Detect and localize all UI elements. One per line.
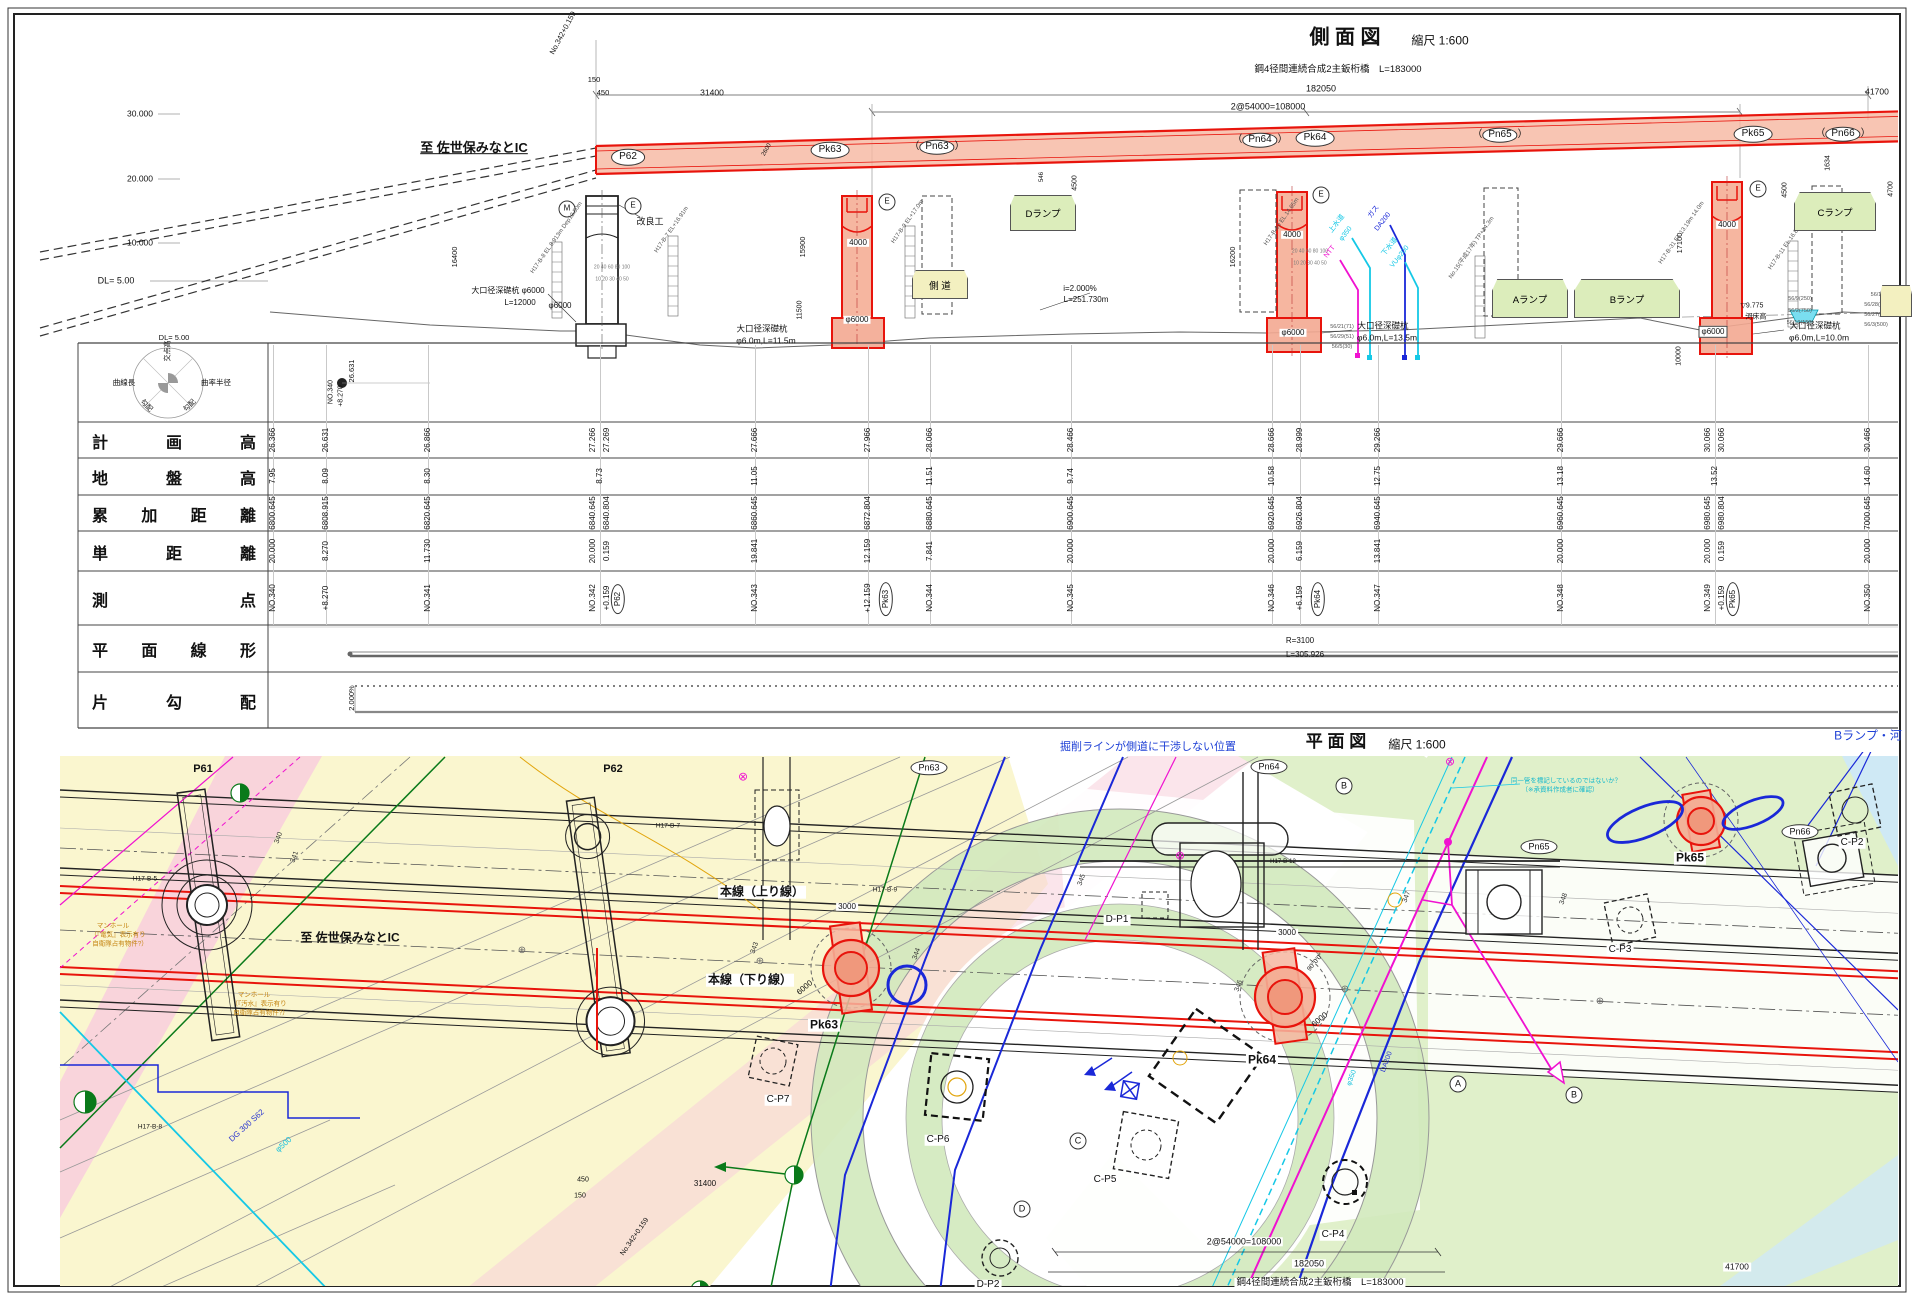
ground-height-value: 8.30: [424, 468, 432, 484]
cumulative-distance-value: 7000.645: [1864, 496, 1872, 529]
unit-distance-value: 0.159: [603, 541, 611, 561]
ramp-B-mark: B: [1566, 1087, 1583, 1104]
elevation-label: 26.631: [348, 360, 356, 383]
pier-bubble-Pk64: Pk64: [1296, 130, 1335, 147]
plan-label: 343: [750, 941, 761, 954]
plan-CP2: C-P2: [1839, 838, 1866, 849]
plan-Pn64: Pn64: [1250, 759, 1287, 774]
unit-distance-value: 8.270: [322, 541, 330, 561]
station-value: NO.350: [1864, 584, 1872, 612]
plan-label: H17-B-8: [138, 1125, 162, 1132]
plan-note-excavation: 掘削ラインが側道に干渉しない位置: [1060, 742, 1236, 754]
plan-label: DG 300 S62: [228, 1108, 266, 1144]
station-value: NO.341: [424, 584, 432, 612]
plan-bridge-type: 鋼4径間連続合成2主鈑桁橋 L=183000: [1234, 1278, 1405, 1288]
alignment-radius: R=3100: [1286, 637, 1314, 645]
plan-destination: 至 佐世保みなとIC: [300, 932, 399, 945]
plan-dim-spans: 2@54000=108000: [1205, 1237, 1283, 1246]
plan-label: 348: [1559, 892, 1570, 905]
planned-height-value: 27.269: [603, 428, 611, 452]
planned-height-value: 28.999: [1296, 428, 1304, 452]
plan-Pn63: Pn63: [910, 760, 947, 775]
destination-label: 至 佐世保みなとIC: [420, 141, 528, 155]
plan-label: H17-B-9: [873, 888, 897, 895]
elevation-label: 56/10(150): [1787, 321, 1814, 327]
cumulative-distance-value: 6840.645: [589, 496, 597, 529]
plan-note-pipe: 同一管を標記しているのではないか？: [1511, 779, 1621, 786]
unit-distance-value: 20.000: [589, 539, 597, 563]
ntt-label: NTT: [1323, 244, 1337, 259]
side-road: 側 道: [912, 270, 968, 299]
bearing-E-icon: E: [879, 194, 896, 211]
planned-height-value: 28.066: [926, 428, 934, 452]
cumulative-distance-value: 6920.645: [1268, 496, 1276, 529]
elevation-label: 31400: [700, 89, 724, 98]
table-row-header: 計画高: [92, 429, 256, 453]
side-road-right: [1880, 285, 1912, 317]
elevation-label: 4500: [1071, 175, 1078, 191]
plan-CP6: C-P6: [925, 1135, 952, 1146]
station-pier-bubble: Pk65: [1726, 582, 1740, 616]
station-cross-icon: ⊕: [1596, 997, 1604, 1008]
pier-bubble-Pn63: （Pn63）: [909, 140, 964, 155]
elevation-label: 4000: [1281, 231, 1303, 239]
table-row-header: 単距離: [92, 540, 256, 564]
elevation-label: 4700: [1887, 181, 1894, 197]
elevation-label: +8.270: [337, 385, 344, 407]
elevation-label: 56/1: [1871, 293, 1882, 299]
unit-distance-value: 20.000: [1704, 539, 1712, 563]
plan-Pn66: Pn66: [1781, 824, 1818, 839]
cumulative-distance-value: 6872.804: [864, 496, 872, 529]
ground-height-value: 12.75: [1374, 466, 1382, 486]
plan-label: 150: [574, 1192, 586, 1199]
bearing-E-icon: E: [1750, 181, 1767, 198]
plan-label: φ500: [274, 1136, 293, 1155]
unit-distance-value: 20.000: [269, 539, 277, 563]
ground-height-value: 8.09: [322, 468, 330, 484]
plan-CP5: C-P5: [1092, 1175, 1119, 1186]
ground-height-value: 7.95: [269, 468, 277, 484]
cumulative-distance-value: 6980.645: [1704, 496, 1712, 529]
elevation-label: 交点高: [164, 341, 171, 362]
elevation-label: No.342+0.159: [548, 10, 577, 55]
manhole-note: マンホール: [238, 993, 271, 1000]
plan-note-bramp: Bランプ・河: [1834, 730, 1902, 743]
station-value: +12.159: [864, 583, 872, 612]
station-value: NO.346: [1268, 584, 1276, 612]
ground-improvement-label: 改良工: [636, 217, 663, 226]
cumulative-distance-value: 6820.645: [424, 496, 432, 529]
pier-bubble-P62: P62: [611, 149, 645, 166]
plan-title: 平 面 図: [1306, 733, 1366, 751]
station-value: NO.348: [1557, 584, 1565, 612]
bearing-E-icon: E: [625, 198, 642, 215]
ramp-A: Aランプ: [1492, 279, 1568, 318]
dim-spans: 2@54000=108000: [1231, 102, 1305, 111]
elevation-label: 546: [1039, 172, 1045, 182]
table-row-header: 累加距離: [92, 502, 256, 526]
pier-bubble-Pn66: （Pn66）: [1815, 127, 1870, 142]
planned-height-value: 27.266: [589, 428, 597, 452]
label-layer: 側 面 図縮尺 1:600鋼4径間連続合成2主鈑桁橋 L=18300018205…: [0, 0, 1914, 1300]
elevation-label: 勾配: [138, 398, 153, 413]
ground-height-value: 11.05: [751, 466, 759, 485]
plan-label: φ350: [1346, 1069, 1358, 1087]
drawing-sheet: 側 面 図縮尺 1:600鋼4径間連続合成2主鈑桁橋 L=18300018205…: [0, 0, 1914, 1300]
bridge-type: 鋼4径間連続合成2主鈑桁橋 L=183000: [1254, 65, 1421, 75]
planned-height-value: 26.866: [424, 428, 432, 452]
elevation-title: 側 面 図: [1309, 28, 1380, 49]
pile-note: 大口径深礎杭: [736, 325, 787, 334]
ramp-C: Cランプ: [1794, 192, 1876, 231]
table-row-header: 片勾配: [92, 689, 256, 713]
elevation-label: 56/9(250): [1788, 297, 1812, 303]
planned-height-value: 30.466: [1864, 428, 1872, 452]
plan-label: DA200: [1380, 1051, 1394, 1074]
cumulative-distance-value: 6926.804: [1296, 496, 1304, 529]
elevation-label: 20 40 60 80 100: [594, 265, 630, 270]
station-value: +8.270: [322, 586, 330, 611]
elevation-label: H17-B-8 EL.8.913m Dep12.50m: [530, 201, 584, 275]
planned-height-value: 27.966: [864, 428, 872, 452]
elevation-label: 56/29(51): [1330, 335, 1354, 341]
elevation-label: φ6000: [844, 316, 871, 324]
station-value: +6.159: [1296, 586, 1304, 611]
bearing-E-icon: E: [1313, 187, 1330, 204]
elevation-label: H17-B-31 EL.13.19m 14.0m: [1658, 201, 1706, 266]
plan-dim-182050: 182050: [1292, 1259, 1326, 1268]
elevation-label: NO.340: [327, 380, 334, 404]
dim-182050: 182050: [1306, 84, 1336, 93]
plan-label: 346: [1234, 979, 1245, 992]
planned-height-value: 28.466: [1067, 428, 1075, 452]
elevation-label: 河床高: [1746, 313, 1767, 320]
plan-label: 344: [912, 947, 923, 960]
utility-cross-icon: ⊗: [1175, 850, 1185, 863]
pier-bubble-Pk65: Pk65: [1734, 126, 1773, 143]
unit-distance-value: 19.841: [751, 539, 759, 563]
ground-height-value: 10.58: [1268, 466, 1276, 486]
unit-distance-value: 20.000: [1557, 539, 1565, 563]
elevation-label: 10 20 30 40 50: [1293, 261, 1326, 266]
elevation-label: L=251.730m: [1064, 296, 1109, 304]
plan-Pk63: Pk63: [808, 1019, 840, 1032]
elevation-label: 1634: [1824, 155, 1831, 171]
plan-label: No.342+0.159: [619, 1217, 650, 1257]
planned-height-value: 29.666: [1557, 428, 1565, 452]
station-pier-bubble: Pk64: [1311, 582, 1325, 616]
station-value: NO.347: [1374, 584, 1382, 612]
planned-height-value: 28.666: [1268, 428, 1276, 452]
plan-label: 3000: [836, 903, 858, 911]
unit-distance-value: 13.841: [1374, 539, 1382, 563]
plan-label: （『汚水』表示有り: [231, 1002, 286, 1009]
elevation-label: φ6.0m,L=10.0m: [1789, 334, 1849, 343]
station-value: NO.349: [1704, 584, 1712, 612]
elevation-label: 16200: [1229, 247, 1237, 268]
mainline-up: 本線（上り線）: [718, 886, 806, 899]
elevation-label: No.15(平成17年) TP+14.3m: [1448, 216, 1496, 280]
plan-label: 340: [274, 831, 285, 844]
pier-bubble-Pk63: Pk63: [811, 142, 850, 159]
manhole-note: マンホール: [97, 924, 130, 931]
station-value: NO.343: [751, 584, 759, 612]
elevation-label: 56/3(500): [1864, 323, 1888, 329]
ramp-D-mark: D: [1014, 1201, 1031, 1218]
elevation-label: 10000: [1675, 346, 1682, 365]
elevation-label: 曲率半径: [201, 379, 231, 387]
plan-Pn65: Pn65: [1520, 839, 1557, 854]
elev-10: 10.000: [127, 239, 153, 248]
plan-label: 90°0′0″: [1307, 953, 1325, 973]
elev-30: 30.000: [127, 110, 153, 119]
plan-label: （『電気』表示有り: [90, 933, 145, 940]
cumulative-distance-value: 6860.645: [751, 496, 759, 529]
plan-label: 自衛隊占有物件?）: [92, 942, 148, 949]
plan-label: 345: [1077, 873, 1088, 886]
station-pier-bubble: P62: [611, 584, 625, 614]
elevation-label: 勾配: [182, 398, 197, 413]
cumulative-distance-value: 6800.645: [269, 496, 277, 529]
utility-cross-icon: ⊗: [1445, 756, 1455, 769]
superelevation-value: 2.000%: [348, 685, 356, 710]
elevation-label: φ6000: [1280, 329, 1307, 337]
elevation-label: φ350: [1338, 225, 1354, 242]
table-row-header: 平面線形: [92, 637, 256, 661]
plan-P62: P62: [603, 764, 623, 776]
pile-note: 大口径深礎杭 φ6000: [471, 287, 544, 295]
cumulative-distance-value: 6840.804: [603, 496, 611, 529]
plan-Pk64: Pk64: [1246, 1054, 1278, 1067]
ramp-B-mark: B: [1336, 778, 1353, 795]
utility-cross-icon: ⊗: [738, 771, 748, 784]
plan-label: （※承資料作成者に確認）: [1522, 788, 1599, 795]
ground-height-value: 13.52: [1711, 466, 1719, 486]
elevation-label: φ6.0m,L=13.5m: [1357, 334, 1417, 343]
unit-distance-value: 6.159: [1296, 541, 1304, 561]
elevation-label: 56/2(750): [1788, 309, 1812, 315]
plan-CP7: C-P7: [765, 1095, 792, 1106]
elevation-label: i=2.000%: [1063, 285, 1097, 293]
plan-label: 450: [577, 1176, 589, 1183]
cumulative-distance-value: 6900.645: [1067, 496, 1075, 529]
unit-distance-value: 20.000: [1268, 539, 1276, 563]
ramp-B: Bランプ: [1574, 279, 1680, 318]
plan-label: 自衛隊占有物件?）: [233, 1011, 289, 1018]
datum-label: DL= 5.00: [98, 276, 135, 285]
pier-bubble-Pn64: （Pn64）: [1232, 133, 1287, 148]
table-row-header: 地盤高: [92, 465, 256, 489]
station-cross-icon: ⊕: [1341, 985, 1349, 996]
planned-height-value: 30.066: [1718, 428, 1726, 452]
ground-height-value: 13.18: [1557, 466, 1565, 486]
station-value: NO.340: [269, 584, 277, 612]
unit-distance-value: 20.000: [1067, 539, 1075, 563]
cumulative-distance-value: 6940.645: [1374, 496, 1382, 529]
unit-distance-value: 20.000: [1864, 539, 1872, 563]
elevation-label: 15900: [799, 237, 807, 258]
station-cross-icon: ⊕: [756, 957, 764, 968]
elevation-scale: 縮尺 1:600: [1411, 35, 1468, 48]
elevation-label: φ6000: [549, 302, 572, 310]
planned-height-value: 26.366: [269, 428, 277, 452]
elevation-label: 4000: [1716, 221, 1738, 229]
cumulative-distance-value: 6980.804: [1718, 496, 1726, 529]
elevation-label: 150: [588, 76, 601, 84]
plan-P61: P61: [193, 764, 213, 776]
planned-height-value: 27.666: [751, 428, 759, 452]
elevation-label: H17-B-7 EL+16.91m: [654, 206, 691, 255]
elevation-label: 4500: [1781, 182, 1788, 198]
plan-label: H17-B-12: [1270, 859, 1296, 865]
ground-height-value: 9.74: [1067, 468, 1075, 484]
cumulative-distance-value: 6880.645: [926, 496, 934, 529]
elevation-label: 16400: [451, 247, 459, 268]
elevation-label: 11500: [796, 301, 803, 320]
ground-height-value: 14.60: [1864, 466, 1872, 486]
plan-CP4: C-P4: [1320, 1230, 1347, 1241]
gas-label: ガス: [1367, 204, 1381, 220]
elevation-label: H17-B-9 EL+17.0m: [891, 199, 926, 245]
planned-height-value: 26.631: [322, 428, 330, 452]
elevation-label: H17-B-10 EL.14.65m: [1263, 197, 1300, 247]
station-value: NO.345: [1067, 584, 1075, 612]
plan-label: H17-B-7: [656, 824, 680, 831]
plan-DP1: D-P1: [1104, 915, 1131, 926]
ramp-D: Dランプ: [1010, 195, 1076, 231]
planned-height-value: 30.066: [1704, 428, 1712, 452]
ground-height-value: 8.73: [596, 468, 604, 484]
ramp-A-mark: A: [1450, 1076, 1467, 1093]
elevation-label: φ6.0m,L=11.5m: [736, 337, 795, 346]
elevation-label: 4000: [847, 239, 869, 247]
cumulative-distance-value: 6960.645: [1557, 496, 1565, 529]
table-column-line: [1300, 345, 1301, 625]
elevation-label: φ6000: [1699, 326, 1728, 338]
elevation-label: 56/21(71): [1330, 325, 1354, 331]
ramp-C-mark: C: [1070, 1133, 1087, 1150]
plan-label: H17-B-5: [133, 877, 157, 884]
plan-label: 31400: [694, 1180, 716, 1188]
elevation-label: 56/5(30): [1332, 345, 1353, 351]
station-pier-bubble: Pk63: [879, 582, 893, 616]
plan-CP3: C-P3: [1607, 945, 1634, 956]
cumulative-distance-value: 6808.915: [322, 496, 330, 529]
elevation-label: 450: [597, 89, 610, 97]
table-row-header: 測点: [92, 587, 256, 611]
plan-scale: 縮尺 1:600: [1388, 739, 1445, 752]
unit-distance-value: 7.841: [926, 541, 934, 561]
elevation-label: DL= 5.00: [159, 334, 190, 342]
elevation-label: 10 20 30 40 50: [595, 277, 628, 282]
unit-distance-value: 12.159: [864, 539, 872, 563]
pile-note: 大口径深礎杭: [1357, 322, 1408, 331]
elevation-label: 41700: [1865, 88, 1889, 97]
table-column-line: [326, 345, 327, 625]
plan-Pk65: Pk65: [1674, 852, 1706, 865]
elevation-label: ▽9.775: [1741, 302, 1764, 309]
ground-height-value: 11.51: [926, 466, 934, 485]
plan-label: 347: [1402, 890, 1413, 903]
unit-distance-value: 11.730: [424, 539, 432, 563]
plan-label: 6000: [1310, 1011, 1329, 1029]
station-cross-icon: ⊕: [518, 946, 526, 957]
plan-label: 3000: [1276, 929, 1298, 937]
elev-20: 20.000: [127, 175, 153, 184]
mainline-down: 本線（下り線）: [706, 974, 794, 987]
plan-label: 341: [290, 850, 301, 863]
planned-height-value: 29.266: [1374, 428, 1382, 452]
alignment-length: L=305.926: [1286, 651, 1324, 659]
plan-label: 41700: [1723, 1263, 1751, 1272]
station-value: NO.344: [926, 584, 934, 612]
plan-DP2: D-P2: [975, 1280, 1002, 1291]
pier-bubble-Pn65: （Pn65）: [1472, 128, 1527, 143]
unit-distance-value: 0.159: [1718, 541, 1726, 561]
elevation-label: L=12000: [504, 299, 535, 307]
elevation-label: 2600: [761, 143, 773, 158]
table-column-line: [600, 345, 601, 625]
plan-label: 6000: [795, 979, 814, 997]
elevation-label: 曲線長: [113, 379, 136, 387]
station-value: NO.342: [589, 584, 597, 612]
